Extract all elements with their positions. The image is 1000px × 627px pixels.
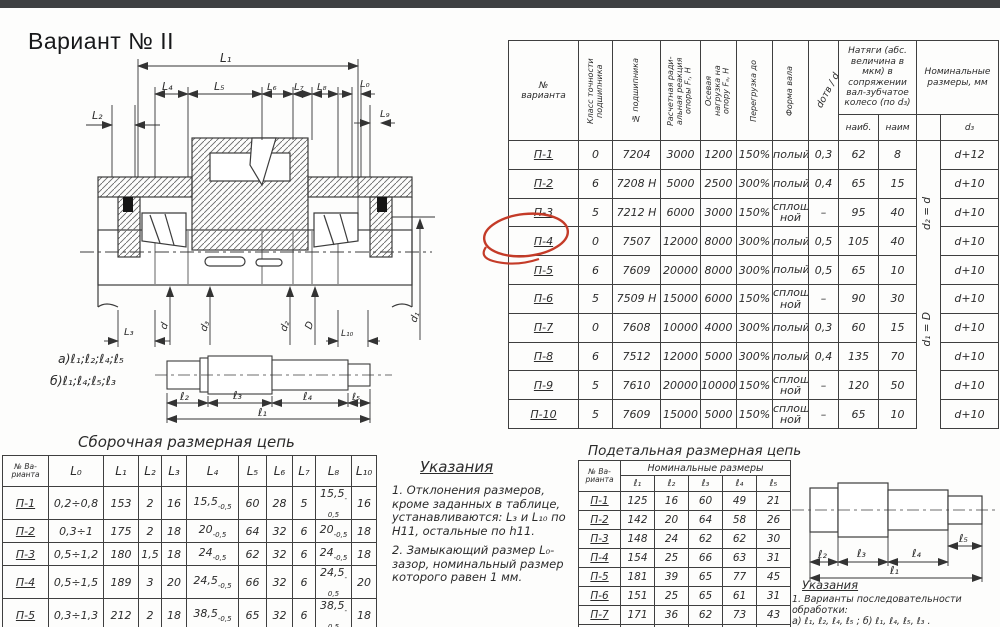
cell-el4: 62 [723, 530, 757, 549]
cell-L7: 6 [293, 520, 316, 543]
cell-class: 5 [579, 371, 613, 400]
cell-L5: 64 [239, 520, 267, 543]
cell-L1: 180 [104, 543, 139, 566]
instructions-title: Указания [420, 458, 574, 476]
cell-class: 0 [579, 141, 613, 170]
instructions-right: Указания 1. Варианты последовательности … [792, 578, 998, 627]
shaft-dim-l2: ℓ₂ [179, 390, 190, 403]
cell-class: 5 [579, 198, 613, 227]
detail-chain-row: П-6 151 25 65 61 31 [579, 587, 791, 606]
cell-shaft-form: полый [773, 169, 809, 198]
cell-shaft-form: полый [773, 313, 809, 342]
cell-variant: П-6 [509, 284, 579, 313]
detail-shaft-drawing: ℓ₂ ℓ₃ ℓ₄ ℓ₅ ℓ₁ [790, 462, 1000, 592]
cell-min: 50 [879, 371, 917, 400]
red-circle-annotation [477, 207, 582, 269]
cell-L1: 175 [104, 520, 139, 543]
cell-class: 6 [579, 256, 613, 285]
cell-bearing-no: 7609 [613, 256, 661, 285]
cell-ratio: – [809, 284, 839, 313]
assembly-chain-table: № Ва- рианта L₀ L₁ L₂ L₃ L₄ L₅ L₆ L₇ L₈ … [2, 455, 377, 627]
cell-el2: 36 [655, 606, 689, 625]
cell-variant: П-10 [509, 400, 579, 429]
cell-el2: 39 [655, 568, 689, 587]
cell-bearing-no: 7610 [613, 371, 661, 400]
cell-el3: 64 [689, 511, 723, 530]
cell-variant: П-2 [509, 169, 579, 198]
cell-el2: 25 [655, 587, 689, 606]
cell-d3: d+10 [941, 169, 999, 198]
cell-L7: 6 [293, 566, 316, 599]
cell-min: 10 [879, 256, 917, 285]
instruction-item-2: 2. Замыкающий размер L₀-зазор, номинальн… [392, 544, 574, 585]
cell-radial: 20000 [661, 256, 701, 285]
shaft-dim-l4: ℓ₄ [302, 390, 313, 403]
cell-el4: 58 [723, 511, 757, 530]
cell-class: 5 [579, 400, 613, 429]
cell-L6: 32 [267, 599, 293, 627]
col-header-L5: L₅ [239, 456, 267, 487]
col-header-el4: ℓ₄ [723, 476, 757, 492]
cell-shaft-form: сплош-ной [773, 284, 809, 313]
cell-d3: d+10 [941, 256, 999, 285]
cell-radial: 20000 [661, 371, 701, 400]
col-header-el3: ℓ₃ [689, 476, 723, 492]
cell-variant: П-4 [579, 549, 621, 568]
col-header-L2: L₂ [139, 456, 162, 487]
cell-d3: d+10 [941, 313, 999, 342]
cell-max: 90 [839, 284, 879, 313]
cell-L2: 2 [139, 520, 162, 543]
cell-el1: 148 [621, 530, 655, 549]
col-header-radial-reaction: Расчетная ради-альная реакция опоры Fᵣ, … [661, 41, 701, 141]
cell-overload: 300% [737, 169, 773, 198]
col-header-L0: L₀ [49, 456, 104, 487]
cell-ratio: 0,3 [809, 141, 839, 170]
col-header-L4: L₄ [187, 456, 239, 487]
cell-overload: 150% [737, 284, 773, 313]
cell-max: 65 [839, 256, 879, 285]
cell-L10: 20 [352, 566, 377, 599]
detail-chain-table: № Ва- рианта Номинальные размеры ℓ₁ ℓ₂ ℓ… [578, 460, 791, 627]
dim-label-L7: L₇ [294, 82, 304, 93]
cell-L8: 20-0,5 [316, 520, 352, 543]
cell-L1: 189 [104, 566, 139, 599]
cell-radial: 15000 [661, 400, 701, 429]
cell-shaft-form: полый [773, 256, 809, 285]
cell-deq [917, 371, 941, 400]
col-header-accuracy-class: Класс точности подшипника [579, 41, 613, 141]
cell-el1: 142 [621, 511, 655, 530]
cell-L0: 0,2÷0,8 [49, 487, 104, 520]
shaft-dim-l3: ℓ₃ [232, 389, 243, 402]
cell-axial: 2500 [701, 169, 737, 198]
cell-el1: 181 [621, 568, 655, 587]
cell-L3: 18 [162, 543, 187, 566]
cell-class: 6 [579, 342, 613, 371]
cell-d3: d+10 [941, 227, 999, 256]
cell-bearing-no: 7212 Н [613, 198, 661, 227]
cell-L10: 18 [352, 543, 377, 566]
assembly-drawing: L₁ L₄ L₅ L₆ L₇ L₈ L₀ L₉ L₂ L₃ L₁₀ d d₃ d… [0, 45, 475, 447]
cell-variant: П-1 [579, 492, 621, 511]
dim-label-L9: L₉ [380, 109, 390, 120]
col-header-interference: Натяги (абс. величина в мкм) в сопряжени… [839, 41, 917, 115]
cell-axial: 1200 [701, 141, 737, 170]
cell-overload: 300% [737, 256, 773, 285]
scanned-task-sheet: { "title": "Вариант № II", "colors": { "… [0, 0, 1000, 627]
cell-max: 120 [839, 371, 879, 400]
cell-L10: 18 [352, 520, 377, 543]
cell-ratio: 0,3 [809, 313, 839, 342]
cell-bearing-no: 7208 Н [613, 169, 661, 198]
cell-class: 6 [579, 169, 613, 198]
cell-el3: 62 [689, 606, 723, 625]
cell-shaft-form: полый [773, 227, 809, 256]
cell-bearing-no: 7609 [613, 400, 661, 429]
col-header-deq-spacer [917, 115, 941, 141]
cell-overload: 150% [737, 371, 773, 400]
cell-deq [917, 256, 941, 285]
dim-label-d: d [158, 321, 171, 331]
dim-label-L6: L₆ [267, 82, 277, 93]
col-header-el1: ℓ₁ [621, 476, 655, 492]
window-top-bar [0, 0, 1000, 8]
col-header-nominal-group: Номинальные размеры [621, 461, 791, 476]
cell-el4: 61 [723, 587, 757, 606]
col-header-L7: L₇ [293, 456, 316, 487]
col-header-bearing-no: № подшипника [613, 41, 661, 141]
cell-axial: 8000 [701, 256, 737, 285]
cell-axial: 8000 [701, 227, 737, 256]
cell-min: 40 [879, 198, 917, 227]
cell-deq [917, 227, 941, 256]
col-header-el2: ℓ₂ [655, 476, 689, 492]
cell-L2: 2 [139, 487, 162, 520]
instructions-title: Указания [802, 578, 998, 592]
cell-d3: d+10 [941, 400, 999, 429]
cell-el3: 62 [689, 530, 723, 549]
cell-variant: П-2 [3, 520, 49, 543]
dim-label-L1: L₁ [220, 51, 232, 65]
bearing-table-row: П-7 0 7608 10000 4000 300% полый 0,3 60 … [509, 313, 999, 342]
cell-el1: 154 [621, 549, 655, 568]
cell-axial: 10000 [701, 371, 737, 400]
cell-d3: d+12 [941, 141, 999, 170]
cell-variant: П-7 [579, 606, 621, 625]
cell-axial: 6000 [701, 284, 737, 313]
cell-axial: 5000 [701, 400, 737, 429]
cell-el2: 25 [655, 549, 689, 568]
rshaft-dim-l5: ℓ₅ [958, 532, 968, 545]
cell-L3: 18 [162, 520, 187, 543]
bearing-table-row: П-8 6 7512 12000 5000 300% полый 0,4 135… [509, 342, 999, 371]
col-header-L3: L₃ [162, 456, 187, 487]
col-header-el5: ℓ₅ [757, 476, 791, 492]
cell-variant: П-1 [509, 141, 579, 170]
cell-L0: 0,3÷1 [49, 520, 104, 543]
cell-L5: 66 [239, 566, 267, 599]
cell-bearing-no: 7507 [613, 227, 661, 256]
cell-deq [917, 198, 941, 227]
cell-variant: П-3 [3, 543, 49, 566]
cell-d3: d+10 [941, 342, 999, 371]
cell-L0: 0,3÷1,3 [49, 599, 104, 627]
col-header-variant: № варианта [509, 41, 579, 141]
assembly-chain-row: П-3 0,5÷1,2 180 1,5 18 24-0,5 62 32 6 24… [3, 543, 377, 566]
cell-L8: 15,5-0,5 [316, 487, 352, 520]
cell-L5: 65 [239, 599, 267, 627]
bearing-table-row: П-10 5 7609 15000 5000 150% сплош-ной – … [509, 400, 999, 429]
cell-shaft-form: полый [773, 141, 809, 170]
cell-L6: 28 [267, 487, 293, 520]
cell-L3: 16 [162, 487, 187, 520]
cell-d3: d+10 [941, 371, 999, 400]
cell-min: 30 [879, 284, 917, 313]
cell-ratio: 0,5 [809, 256, 839, 285]
assembly-chain-row: П-1 0,2÷0,8 153 2 16 15,5-0,5 60 28 5 15… [3, 487, 377, 520]
cell-L8: 38,5-0,5 [316, 599, 352, 627]
col-header-variant: № Ва- рианта [579, 461, 621, 492]
cell-axial: 4000 [701, 313, 737, 342]
cell-el5: 30 [757, 530, 791, 549]
cell-L6: 32 [267, 543, 293, 566]
cell-ratio: 0,5 [809, 227, 839, 256]
cell-L4: 15,5-0,5 [187, 487, 239, 520]
cell-overload: 150% [737, 198, 773, 227]
cell-L7: 6 [293, 543, 316, 566]
cell-L3: 20 [162, 566, 187, 599]
instruction-item-1: 1. Отклонения размеров, кроме заданных в… [392, 484, 574, 538]
cell-bearing-no: 7512 [613, 342, 661, 371]
cell-L5: 60 [239, 487, 267, 520]
cell-max: 105 [839, 227, 879, 256]
cell-el5: 45 [757, 568, 791, 587]
cell-class: 0 [579, 227, 613, 256]
cell-L2: 2 [139, 599, 162, 627]
cell-L1: 212 [104, 599, 139, 627]
cell-L0: 0,5÷1,5 [49, 566, 104, 599]
bearing-table-row: П-4 0 7507 12000 8000 300% полый 0,5 105… [509, 227, 999, 256]
cell-bearing-no: 7204 [613, 141, 661, 170]
rshaft-dim-l3: ℓ₃ [856, 547, 867, 560]
col-header-d3: d₃ [941, 115, 999, 141]
cell-el4: 77 [723, 568, 757, 587]
cell-d3: d+10 [941, 198, 999, 227]
cell-min: 70 [879, 342, 917, 371]
detail-chain-row: П-5 181 39 65 77 45 [579, 568, 791, 587]
cell-ratio: – [809, 400, 839, 429]
cell-bearing-no: 7608 [613, 313, 661, 342]
cell-el5: 31 [757, 587, 791, 606]
cell-el3: 66 [689, 549, 723, 568]
detail-chain-row: П-4 154 25 66 63 31 [579, 549, 791, 568]
instructions-middle: Указания 1. Отклонения размеров, кроме з… [392, 458, 574, 591]
bearing-table-row: П-9 5 7610 20000 10000 150% сплош-ной – … [509, 371, 999, 400]
cell-ratio: 0,4 [809, 169, 839, 198]
assembly-chain-title: Сборочная размерная цепь [78, 433, 295, 451]
machining-seq-b: б)ℓ₁;ℓ₄;ℓ₅;ℓ₃ [50, 373, 116, 388]
instruction-item-1ab: а) ℓ₁, ℓ₂, ℓ₄, ℓ₅ ; б) ℓ₁, ℓ₄, ℓ₅, ℓ₃ . [792, 616, 998, 627]
rshaft-dim-l1: ℓ₁ [889, 564, 899, 577]
col-header-overload: Перегрузка до [737, 41, 773, 141]
cell-variant: П-8 [509, 342, 579, 371]
cell-el5: 43 [757, 606, 791, 625]
cell-variant: П-6 [579, 587, 621, 606]
cell-L2: 1,5 [139, 543, 162, 566]
col-header-shaft-form: Форма вала [773, 41, 809, 141]
cell-el4: 63 [723, 549, 757, 568]
cell-radial: 10000 [661, 313, 701, 342]
cell-shaft-form: полый [773, 342, 809, 371]
dim-label-L0: L₀ [360, 79, 370, 90]
cell-L8: 24-0,5 [316, 543, 352, 566]
cell-radial: 15000 [661, 284, 701, 313]
cell-L10: 16 [352, 487, 377, 520]
cell-overload: 150% [737, 141, 773, 170]
bearing-table-row: П-2 6 7208 Н 5000 2500 300% полый 0,4 65… [509, 169, 999, 198]
cell-min: 10 [879, 400, 917, 429]
shaft-dim-l5: ℓ₅ [352, 392, 360, 403]
cell-deq [917, 313, 941, 342]
detail-chain-row: П-2 142 20 64 58 26 [579, 511, 791, 530]
cell-variant: П-9 [509, 371, 579, 400]
cell-min: 8 [879, 141, 917, 170]
cell-radial: 12000 [661, 227, 701, 256]
cell-axial: 5000 [701, 342, 737, 371]
cell-variant: П-4 [3, 566, 49, 599]
col-header-max: наиб. [839, 115, 879, 141]
cell-L0: 0,5÷1,2 [49, 543, 104, 566]
bearing-table-row: П-5 6 7609 20000 8000 300% полый 0,5 65 … [509, 256, 999, 285]
dim-label-L5: L₅ [214, 80, 225, 93]
cell-deq [917, 169, 941, 198]
cell-L7: 5 [293, 487, 316, 520]
cell-L1: 153 [104, 487, 139, 520]
cell-radial: 5000 [661, 169, 701, 198]
cell-shaft-form: сплош-ной [773, 400, 809, 429]
cell-deq [917, 284, 941, 313]
col-header-L10: L₁₀ [352, 456, 377, 487]
cell-axial: 3000 [701, 198, 737, 227]
cell-el2: 16 [655, 492, 689, 511]
cell-L4: 38,5-0,5 [187, 599, 239, 627]
cell-deq [917, 342, 941, 371]
cell-L4: 24,5-0,5 [187, 566, 239, 599]
cell-L7: 6 [293, 599, 316, 627]
col-header-nominal-sizes: Номинальные размеры, мм [917, 41, 999, 115]
cell-variant: П-5 [3, 599, 49, 627]
cell-L3: 18 [162, 599, 187, 627]
cell-variant: П-1 [3, 487, 49, 520]
cell-L4: 24-0,5 [187, 543, 239, 566]
cell-el4: 49 [723, 492, 757, 511]
dim-label-L3: L₃ [124, 327, 134, 338]
cell-variant: П-3 [579, 530, 621, 549]
cell-overload: 300% [737, 227, 773, 256]
col-header-L8: L₈ [316, 456, 352, 487]
cell-L4: 20-0,5 [187, 520, 239, 543]
bearing-table-row: П-3 5 7212 Н 6000 3000 150% сплош-ной – … [509, 198, 999, 227]
cell-el2: 24 [655, 530, 689, 549]
cell-class: 5 [579, 284, 613, 313]
cell-deq [917, 141, 941, 170]
cell-variant: П-7 [509, 313, 579, 342]
col-header-variant: № Ва- рианта [3, 456, 49, 487]
cell-overload: 150% [737, 400, 773, 429]
cell-ratio: – [809, 371, 839, 400]
cell-min: 15 [879, 313, 917, 342]
detail-chain-row: П-1 125 16 60 49 21 [579, 492, 791, 511]
cell-el4: 73 [723, 606, 757, 625]
rshaft-dim-l4: ℓ₄ [911, 547, 922, 560]
cell-L8: 24,5-0,5 [316, 566, 352, 599]
cell-min: 40 [879, 227, 917, 256]
cell-L2: 3 [139, 566, 162, 599]
cell-deq [917, 400, 941, 429]
bearing-table-row: П-6 5 7509 Н 15000 6000 150% сплош-ной –… [509, 284, 999, 313]
cell-ratio: 0,4 [809, 342, 839, 371]
assembly-chain-row: П-5 0,3÷1,3 212 2 18 38,5-0,5 65 32 6 38… [3, 599, 377, 627]
col-header-min: наим [879, 115, 917, 141]
cell-el3: 60 [689, 492, 723, 511]
cell-L10: 18 [352, 599, 377, 627]
cell-max: 65 [839, 400, 879, 429]
dim-label-L8: L₈ [317, 82, 327, 93]
detail-chain-row: П-7 171 36 62 73 43 [579, 606, 791, 625]
shaft-dim-l1: ℓ₁ [257, 406, 267, 419]
cell-el1: 125 [621, 492, 655, 511]
cell-el1: 151 [621, 587, 655, 606]
dim-label-L2: L₂ [92, 109, 103, 122]
cell-variant: П-5 [579, 568, 621, 587]
bearing-table-row: П-1 0 7204 3000 1200 150% полый 0,3 62 8… [509, 141, 999, 170]
detail-chain-row: П-3 148 24 62 62 30 [579, 530, 791, 549]
cell-variant: П-2 [579, 511, 621, 530]
cell-overload: 300% [737, 313, 773, 342]
cell-d3: d+10 [941, 284, 999, 313]
cell-el3: 65 [689, 568, 723, 587]
cell-max: 95 [839, 198, 879, 227]
cell-radial: 12000 [661, 342, 701, 371]
assembly-chain-row: П-2 0,3÷1 175 2 18 20-0,5 64 32 6 20-0,5… [3, 520, 377, 543]
dim-label-L10: L₁₀ [341, 329, 354, 339]
cell-el1: 171 [621, 606, 655, 625]
cell-min: 15 [879, 169, 917, 198]
instruction-item-1: 1. Варианты последовательности обработки… [792, 594, 998, 616]
cell-max: 60 [839, 313, 879, 342]
cell-el2: 20 [655, 511, 689, 530]
cell-max: 62 [839, 141, 879, 170]
cell-el3: 65 [689, 587, 723, 606]
dim-label-L4: L₄ [162, 80, 173, 93]
col-header-axial-load: Осевая нагрузка на опору Fₐ, Н [701, 41, 737, 141]
cell-L5: 62 [239, 543, 267, 566]
cell-shaft-form: сплош-ной [773, 198, 809, 227]
col-header-bore-ratio: dотв / d [809, 41, 839, 141]
col-header-L6: L₆ [267, 456, 293, 487]
cell-el5: 26 [757, 511, 791, 530]
cell-max: 135 [839, 342, 879, 371]
cell-L6: 32 [267, 566, 293, 599]
cell-max: 65 [839, 169, 879, 198]
cell-el5: 21 [757, 492, 791, 511]
rshaft-dim-l2: ℓ₂ [817, 548, 828, 561]
cell-bearing-no: 7509 Н [613, 284, 661, 313]
cell-class: 0 [579, 313, 613, 342]
col-header-L1: L₁ [104, 456, 139, 487]
cell-radial: 6000 [661, 198, 701, 227]
